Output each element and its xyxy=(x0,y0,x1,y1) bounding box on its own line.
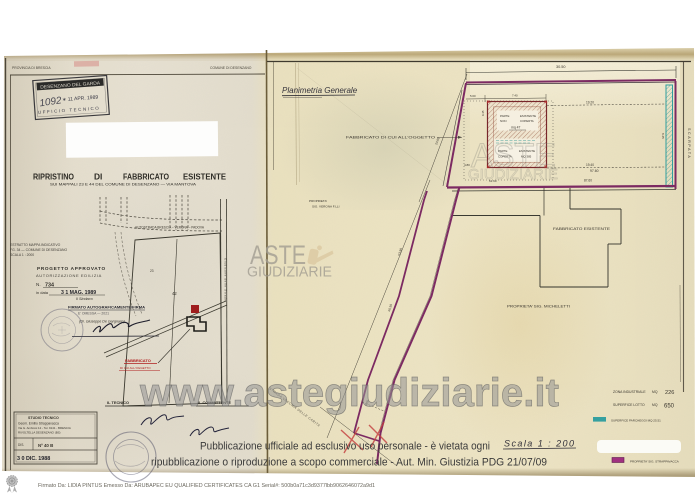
svg-text:5.60: 5.60 xyxy=(470,94,476,98)
svg-text:Nº 40 B: Nº 40 B xyxy=(38,443,53,448)
svg-text:(Dr. Giuseppe De Gargnano): (Dr. Giuseppe De Gargnano) xyxy=(79,320,125,324)
svg-text:87.60: 87.60 xyxy=(584,179,592,183)
svg-text:mq 47: mq 47 xyxy=(511,126,521,130)
svg-text:www.astegiudiziarie.it: www.astegiudiziarie.it xyxy=(139,371,559,415)
svg-text:8.45: 8.45 xyxy=(661,133,665,139)
svg-text:9.45: 9.45 xyxy=(481,110,485,116)
svg-text:19.20: 19.20 xyxy=(586,101,594,105)
svg-text:Planimetria Generale: Planimetria Generale xyxy=(282,86,358,95)
svg-text:7.40: 7.40 xyxy=(512,94,518,98)
svg-text:GIUDIZIARIE: GIUDIZIARIE xyxy=(468,166,558,183)
svg-text:RIVOLTELLA DESENZANO (BS): RIVOLTELLA DESENZANO (BS) xyxy=(18,431,61,435)
svg-text:30.50: 30.50 xyxy=(556,65,566,69)
svg-text:PROPRIETA’: PROPRIETA’ xyxy=(309,199,328,203)
svg-text:3 1 MAG. 1989: 3 1 MAG. 1989 xyxy=(61,290,96,296)
svg-text:in data: in data xyxy=(36,290,49,295)
svg-text:N.: N. xyxy=(36,282,41,287)
svg-text:226: 226 xyxy=(665,390,674,396)
svg-text:23: 23 xyxy=(150,269,154,273)
svg-text:Il Sindaco: Il Sindaco xyxy=(76,297,93,301)
svg-text:FABBRICATO ESISTENTE: FABBRICATO ESISTENTE xyxy=(553,227,611,231)
svg-text:Geom. Emilio Strappavacca: Geom. Emilio Strappavacca xyxy=(18,422,59,426)
svg-text:SIG. VERONA F.LLI: SIG. VERONA F.LLI xyxy=(312,205,340,209)
svg-text:NON: NON xyxy=(500,119,506,123)
svg-text:Scala 1 : 200: Scala 1 : 200 xyxy=(504,439,574,449)
svg-text:SUPERFICE PARCHEGGI MQ 2: SUPERFICE PARCHEGGI MQ 25.51 xyxy=(611,419,661,423)
svg-text:FABBRICATO DI CUI ALL'OGGET: FABBRICATO DI CUI ALL'OGGETTO xyxy=(346,136,436,140)
svg-text:650: 650 xyxy=(664,404,675,410)
svg-text:Firmato Da: LIDIA PINTUS Emess: Firmato Da: LIDIA PINTUS Emesso Da: ARUB… xyxy=(38,483,375,489)
svg-text:DIS.: DIS. xyxy=(18,443,24,447)
svg-text:Via G. Ambrosi 12 - Tel. 9141: Via G. Ambrosi 12 - Tel. 9141 - BRESCIA xyxy=(18,426,71,430)
svg-text:AUTOSTRADA BRESCIA – VERONA: AUTOSTRADA BRESCIA – VERONA – PADOVA xyxy=(135,226,205,230)
svg-text:MQ: MQ xyxy=(652,390,658,394)
svg-text:19.40: 19.40 xyxy=(586,163,594,167)
svg-text:Pubblicazione ufficiale ad esc: Pubblicazione ufficiale ad esclusivo uso… xyxy=(200,441,490,453)
svg-text:ESISTENTE: ESISTENTE xyxy=(520,114,536,118)
svg-text:SUPERFICE LOTTO: SUPERFICE LOTTO xyxy=(613,403,645,407)
svg-text:42: 42 xyxy=(172,291,177,296)
svg-text:PROVINCIA DI BRESCIA: PROVINCIA DI BRESCIA xyxy=(12,66,51,70)
svg-text:STUDIO TECNICO: STUDIO TECNICO xyxy=(28,416,59,420)
svg-text:FABBRICATO: FABBRICATO xyxy=(123,172,169,182)
svg-text:97.60: 97.60 xyxy=(590,169,599,173)
svg-text:COMUNE DI DESENZANO: COMUNE DI DESENZANO xyxy=(210,66,252,70)
svg-text:COPERTA: COPERTA xyxy=(520,119,534,123)
svg-text:MQ: MQ xyxy=(652,403,658,407)
svg-text:SCALA 1 : 2000: SCALA 1 : 2000 xyxy=(10,253,34,257)
svg-text:PARTE: PARTE xyxy=(500,114,509,118)
svg-text:ESTRATTO MAPPA INDICATIVO: ESTRATTO MAPPA INDICATIVO xyxy=(10,243,61,247)
svg-text:DI: DI xyxy=(94,172,102,182)
svg-text:ripubblicazione o riproduzione: ripubblicazione o riproduzione a scopo c… xyxy=(151,457,547,469)
svg-text:FABBRICATO: FABBRICATO xyxy=(125,358,151,363)
svg-text:FG. 34 — COMUNE DI DESENZANO: FG. 34 — COMUNE DI DESENZANO xyxy=(10,248,67,252)
svg-text:GIUDIZIARIE: GIUDIZIARIE xyxy=(247,265,332,281)
svg-text:SUI MAPPALI 23 E 44 DEL: SUI MAPPALI 23 E 44 DEL COMUNE DI DESENZ… xyxy=(50,183,197,187)
svg-text:3 0 DIC. 1988: 3 0 DIC. 1988 xyxy=(17,456,50,462)
svg-text:PROGETTO APPROVATO: PROGETTO APPROVATO xyxy=(37,266,106,271)
svg-text:SCARPATA: SCARPATA xyxy=(687,128,691,159)
svg-text:PROPRIETA’ SIG. MICHELETTI: PROPRIETA’ SIG. MICHELETTI xyxy=(507,305,570,309)
svg-text:ZONA INDUSTRIALE: ZONA INDUSTRIALE xyxy=(613,390,646,394)
svg-text:DI CUI ALL'OGGETTO: DI CUI ALL'OGGETTO xyxy=(120,366,151,370)
svg-text:RIPRISTINO: RIPRISTINO xyxy=(33,172,74,182)
svg-text:PROPRIETA’ SIG. STRAPPAVAC: PROPRIETA’ SIG. STRAPPAVACCA xyxy=(630,460,679,464)
svg-text:ESISTENTE: ESISTENTE xyxy=(183,172,226,182)
svg-text:AUTORIZZAZIONE EDILIZIA: AUTORIZZAZIONE EDILIZIA xyxy=(36,273,102,278)
svg-text:Giudicone delle Strade: Giudicone delle Strade xyxy=(224,258,228,302)
svg-text:IL TECNICO: IL TECNICO xyxy=(107,400,129,405)
svg-text:FIRMATO AUTOGRAFICAMENTE/FIRMA: FIRMATO AUTOGRAFICAMENTE/FIRMA xyxy=(68,305,145,310)
svg-text:E’ OMESSA — 2021: E’ OMESSA — 2021 xyxy=(78,312,109,316)
